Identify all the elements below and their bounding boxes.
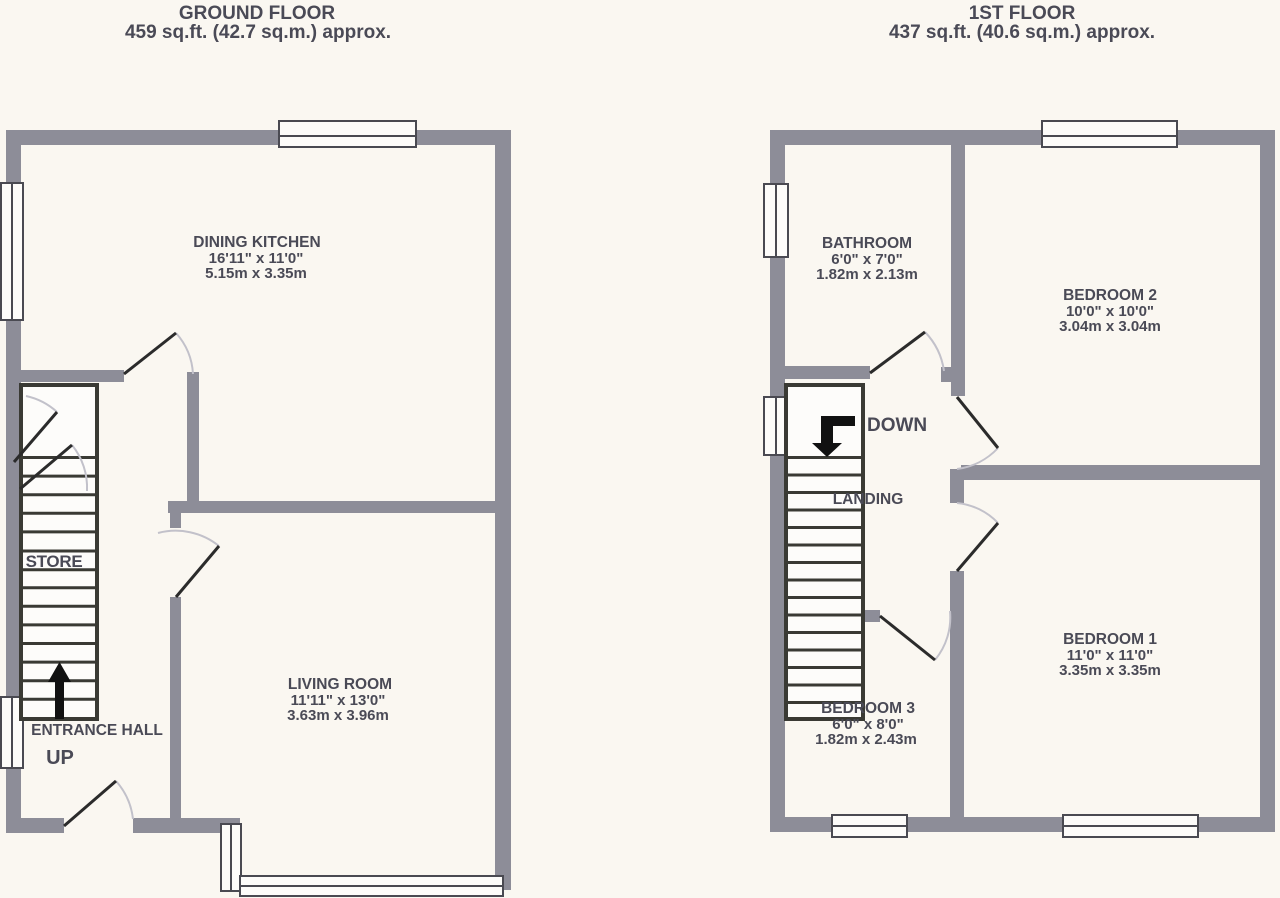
svg-text:437 sq.ft. (40.6 sq.m.) approx: 437 sq.ft. (40.6 sq.m.) approx. [889, 22, 1155, 43]
svg-text:BEDROOM 2: BEDROOM 2 [1063, 287, 1157, 304]
svg-text:1ST FLOOR: 1ST FLOOR [969, 3, 1076, 24]
svg-text:BATHROOM: BATHROOM [822, 235, 912, 252]
svg-text:459 sq.ft. (42.7 sq.m.) approx: 459 sq.ft. (42.7 sq.m.) approx. [125, 22, 391, 43]
svg-text:ENTRANCE HALL: ENTRANCE HALL [31, 722, 163, 739]
svg-text:STORE: STORE [26, 552, 83, 571]
svg-text:LIVING ROOM: LIVING ROOM [288, 676, 392, 693]
svg-text:5.15m x 3.35m: 5.15m x 3.35m [205, 265, 307, 282]
svg-text:BEDROOM 1: BEDROOM 1 [1063, 631, 1157, 648]
svg-text:3.63m x 3.96m: 3.63m x 3.96m [287, 707, 389, 724]
svg-text:1.82m x 2.43m: 1.82m x 2.43m [815, 731, 917, 748]
svg-text:DOWN: DOWN [867, 415, 927, 436]
svg-text:DINING KITCHEN: DINING KITCHEN [193, 234, 320, 251]
svg-text:BEDROOM 3: BEDROOM 3 [821, 700, 915, 717]
svg-text:GROUND FLOOR: GROUND FLOOR [179, 3, 335, 24]
svg-text:LANDING: LANDING [833, 491, 904, 508]
svg-text:3.35m x 3.35m: 3.35m x 3.35m [1059, 662, 1161, 679]
svg-text:1.82m x 2.13m: 1.82m x 2.13m [816, 266, 918, 283]
svg-text:3.04m x 3.04m: 3.04m x 3.04m [1059, 318, 1161, 335]
svg-text:UP: UP [46, 747, 74, 769]
